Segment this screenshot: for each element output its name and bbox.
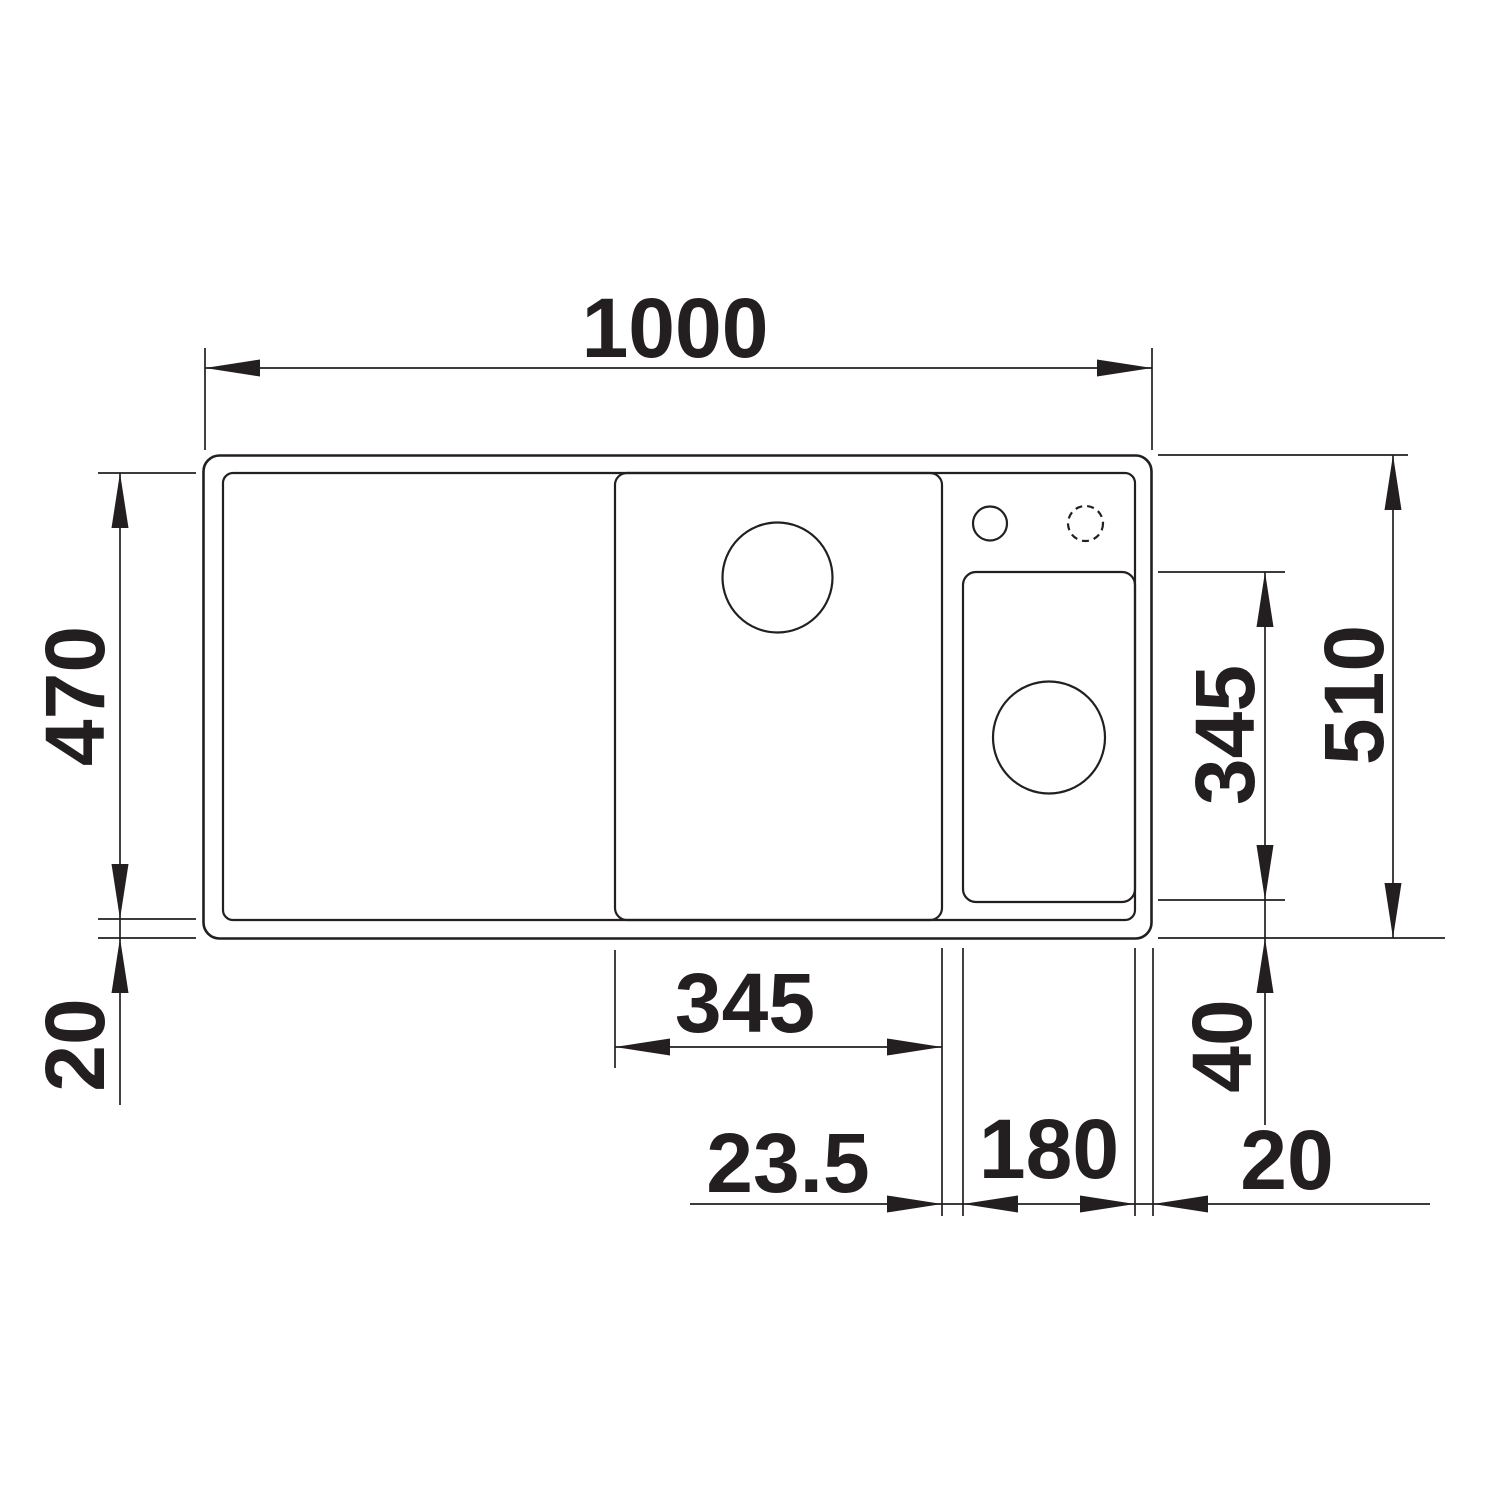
arrowhead-up-icon	[112, 473, 129, 528]
dim-divider-width-label: 23.5	[706, 1116, 870, 1210]
sink-rim-inner-edge	[223, 473, 1135, 920]
dim-rim-inner-depth: 470 20	[28, 473, 196, 1105]
arrowhead-left-icon	[615, 1039, 670, 1056]
arrowhead-right-icon	[887, 1196, 942, 1213]
small-bowl-drain-hole	[993, 682, 1105, 794]
arrowhead-right-icon	[887, 1039, 942, 1056]
tap-hole-icon	[973, 507, 1007, 541]
arrowhead-left-icon	[1153, 1196, 1208, 1213]
dim-small-bowl-width-label: 180	[979, 1102, 1119, 1196]
dim-main-bowl-width-label: 345	[675, 956, 815, 1050]
technical-drawing-canvas: 1000 470 20 510 345 40	[0, 0, 1500, 1500]
arrowhead-up-icon	[112, 938, 129, 993]
arrowhead-down-icon	[112, 864, 129, 919]
arrowhead-down-icon	[1385, 883, 1402, 938]
dim-small-bowl-depth-label: 345	[1178, 665, 1272, 805]
dim-rim-edge-right-label: 20	[1240, 1113, 1333, 1207]
tap-hole-optional-dashed-icon	[1068, 506, 1103, 541]
dim-small-bowl-depth: 345 40	[1158, 572, 1285, 1125]
dim-rim-edge-bottom-left-label: 20	[28, 998, 122, 1091]
arrowhead-up-icon	[1385, 455, 1402, 510]
dim-rim-inner-depth-label: 470	[28, 626, 122, 766]
arrowhead-left-icon	[963, 1196, 1018, 1213]
dim-overall-width: 1000	[205, 281, 1152, 450]
arrowhead-left-icon	[205, 360, 260, 377]
arrowhead-right-icon	[1097, 360, 1152, 377]
main-bowl	[615, 473, 942, 920]
dim-overall-width-label: 1000	[582, 281, 769, 375]
main-bowl-drain-hole	[723, 523, 833, 633]
arrowhead-up-icon	[1257, 938, 1274, 993]
sink-body	[204, 456, 1152, 939]
dim-overall-depth-label: 510	[1307, 625, 1401, 765]
arrowhead-down-icon	[1257, 845, 1274, 900]
sink-dimension-drawing: 1000 470 20 510 345 40	[0, 0, 1500, 1500]
arrowhead-up-icon	[1257, 572, 1274, 627]
small-bowl	[963, 572, 1135, 902]
dim-small-bowl-bottom-offset-label: 40	[1175, 999, 1269, 1092]
arrowhead-right-icon	[1080, 1196, 1135, 1213]
